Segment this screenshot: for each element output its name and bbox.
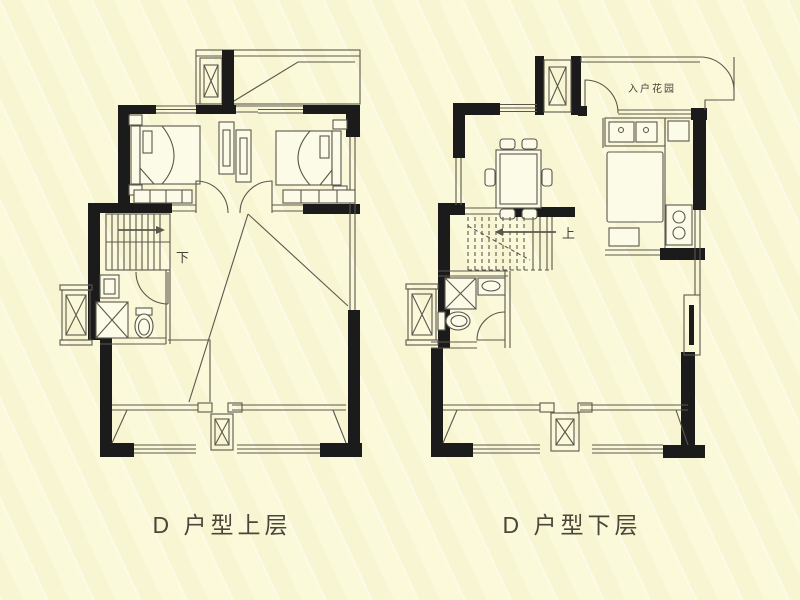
ac-platform-icon xyxy=(60,285,92,345)
stairs-direction-label: 下 xyxy=(176,250,189,265)
chair-icon xyxy=(500,209,515,219)
entry-garden-label: 入户花园 xyxy=(628,82,676,95)
door-arc-icon xyxy=(578,80,618,116)
chair-icon xyxy=(500,139,515,149)
kitchen xyxy=(603,118,692,255)
entry-door-arc-icon xyxy=(700,57,734,91)
kitchen-island xyxy=(607,152,663,222)
basin-icon xyxy=(478,278,505,295)
void-lines xyxy=(168,214,348,402)
chair-icon xyxy=(522,139,537,149)
toilet-icon xyxy=(438,312,470,330)
stove-icon xyxy=(666,205,692,245)
kitchen-cabinet xyxy=(668,121,689,141)
bedroom-right xyxy=(276,120,355,203)
door-arc-icon xyxy=(196,181,272,213)
chair-icon xyxy=(542,169,552,186)
upper-floor-caption: D 户型上层 xyxy=(102,506,342,540)
vent-shaft-icon xyxy=(551,413,579,451)
stairs-down-icon xyxy=(106,214,170,270)
floor-plan-image: 下 xyxy=(0,0,800,600)
nightstand-icon xyxy=(333,120,347,129)
ac-platform-icon xyxy=(406,284,438,345)
balcony-upper xyxy=(112,403,346,450)
chair-icon xyxy=(485,169,495,186)
kitchen-counter xyxy=(609,228,639,246)
wardrobe-icon xyxy=(283,190,355,203)
door-arc-icon xyxy=(136,272,168,304)
wardrobe-icon xyxy=(134,190,192,203)
door-arc-icon xyxy=(477,312,505,340)
basin-icon xyxy=(100,275,119,298)
vent-shaft-icon xyxy=(200,58,222,104)
bathroom-upper xyxy=(96,270,170,344)
hall-wardrobes xyxy=(219,122,251,182)
toilet-icon xyxy=(135,308,153,338)
vent-shaft-icon xyxy=(211,414,233,450)
wall xyxy=(222,50,234,107)
bedroom-left xyxy=(129,115,200,203)
nightstand-icon xyxy=(129,115,142,125)
outer-walls-lower xyxy=(431,56,707,458)
window-sash xyxy=(684,295,700,355)
vent-shaft-icon xyxy=(544,60,571,112)
kitchen-sink-icon xyxy=(605,118,665,146)
shower-icon xyxy=(445,278,476,309)
lower-floor-caption: D 户型下层 xyxy=(452,506,692,540)
shower-icon xyxy=(96,302,128,338)
stairs-direction-label: 上 xyxy=(562,226,575,241)
upper-floor-plan: 下 xyxy=(60,50,362,457)
stairs-up-icon xyxy=(468,217,556,270)
lower-floor-plan: 入户花园 xyxy=(406,56,734,458)
balcony-lower xyxy=(443,403,688,451)
bed-icon xyxy=(276,131,341,185)
bed-icon xyxy=(131,126,200,184)
